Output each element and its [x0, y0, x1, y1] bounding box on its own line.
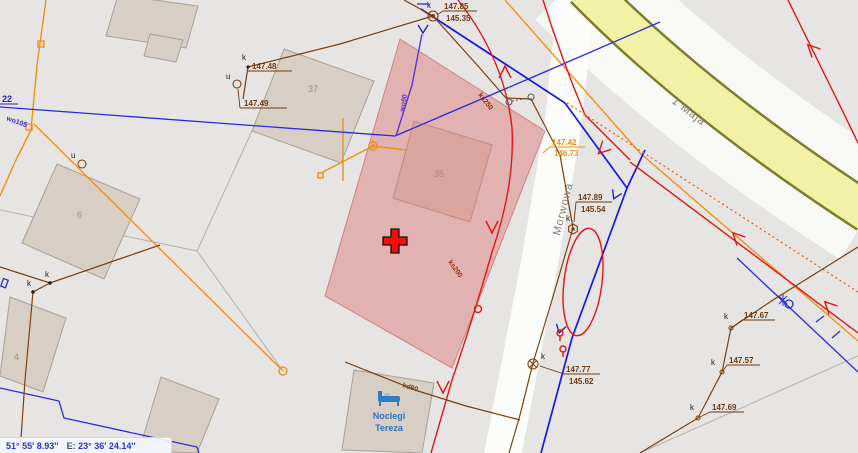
- elevation-value: 146.73: [554, 149, 579, 158]
- map-viewer: 37 35 6 4: [0, 0, 858, 453]
- elevation-value: 147.42: [552, 138, 577, 147]
- elevation-value: 145.35: [446, 14, 471, 23]
- elevation-value: 147.49: [244, 99, 269, 108]
- building-37-label: 37: [308, 84, 318, 94]
- latitude-value: 51° 55' 8.93'': [6, 441, 59, 451]
- longitude-label: E:: [67, 441, 76, 451]
- elevation-value: 147.67: [744, 311, 769, 320]
- elevation-value: 147.77: [566, 365, 591, 374]
- elevation-value: 147.57: [729, 356, 754, 365]
- parcel-number: 22: [2, 94, 12, 104]
- map-canvas[interactable]: 37 35 6 4: [0, 0, 858, 453]
- u-mark: u: [226, 72, 230, 81]
- poi-name-line2: Tereza: [375, 423, 404, 433]
- elevation-value: 147.48: [252, 62, 277, 71]
- status-bar: 51° 55' 8.93'' E: 23° 36' 24.14'': [0, 437, 172, 453]
- building-4-label: 4: [14, 352, 19, 362]
- elevation-value: 147.85: [444, 2, 469, 11]
- elevation-value: 147.69: [712, 403, 737, 412]
- poi-name-line1: Noclegi: [373, 411, 406, 421]
- longitude-value: 23° 36' 24.14'': [78, 441, 136, 451]
- elevation-value: 145.62: [569, 377, 594, 386]
- elevation-value: 145.54: [581, 205, 606, 214]
- u-mark: u: [71, 151, 75, 160]
- elevation-value: 147.89: [578, 193, 603, 202]
- building-6-label: 6: [77, 210, 82, 220]
